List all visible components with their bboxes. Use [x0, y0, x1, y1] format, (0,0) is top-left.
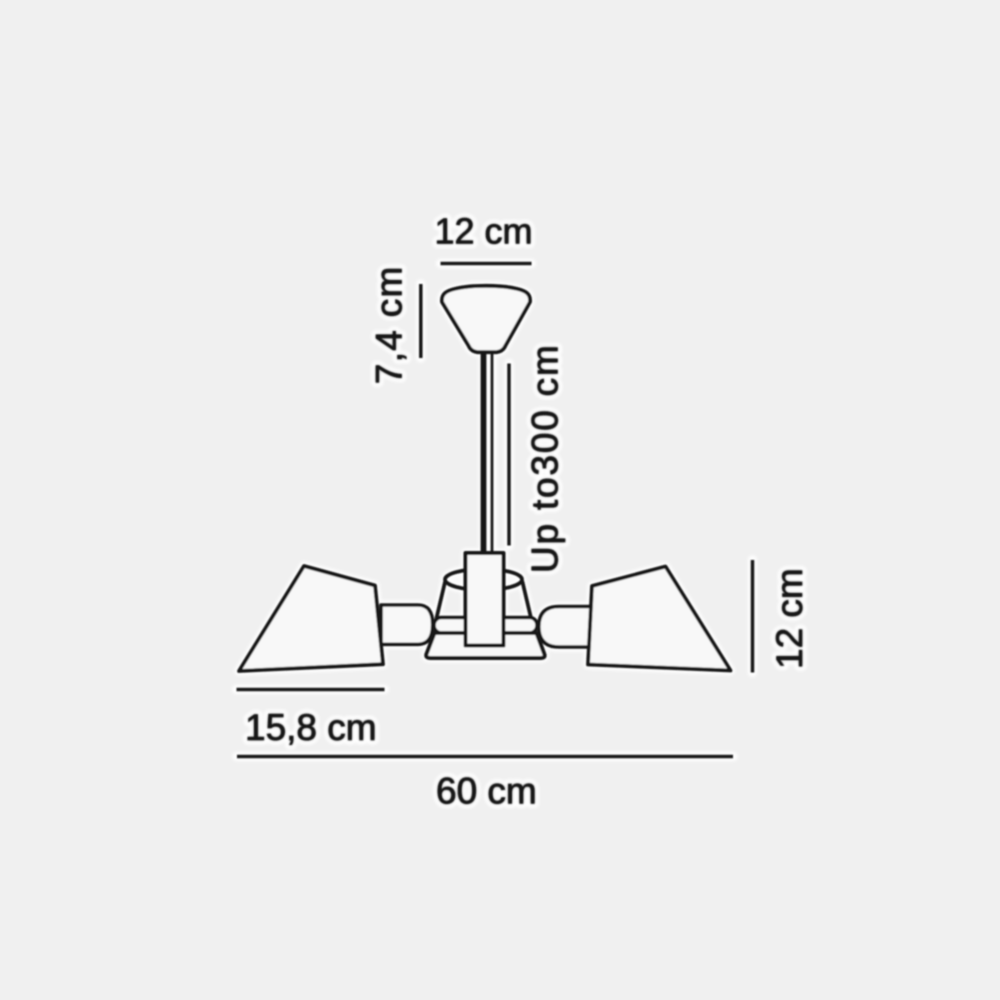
svg-text:60 cm: 60 cm [436, 771, 537, 812]
svg-text:7,4 cm: 7,4 cm [369, 265, 410, 384]
svg-text:12 cm: 12 cm [769, 568, 810, 669]
svg-text:Up to300 cm: Up to300 cm [525, 343, 566, 573]
svg-text:12 cm: 12 cm [435, 211, 533, 252]
svg-text:15,8 cm: 15,8 cm [245, 707, 377, 748]
